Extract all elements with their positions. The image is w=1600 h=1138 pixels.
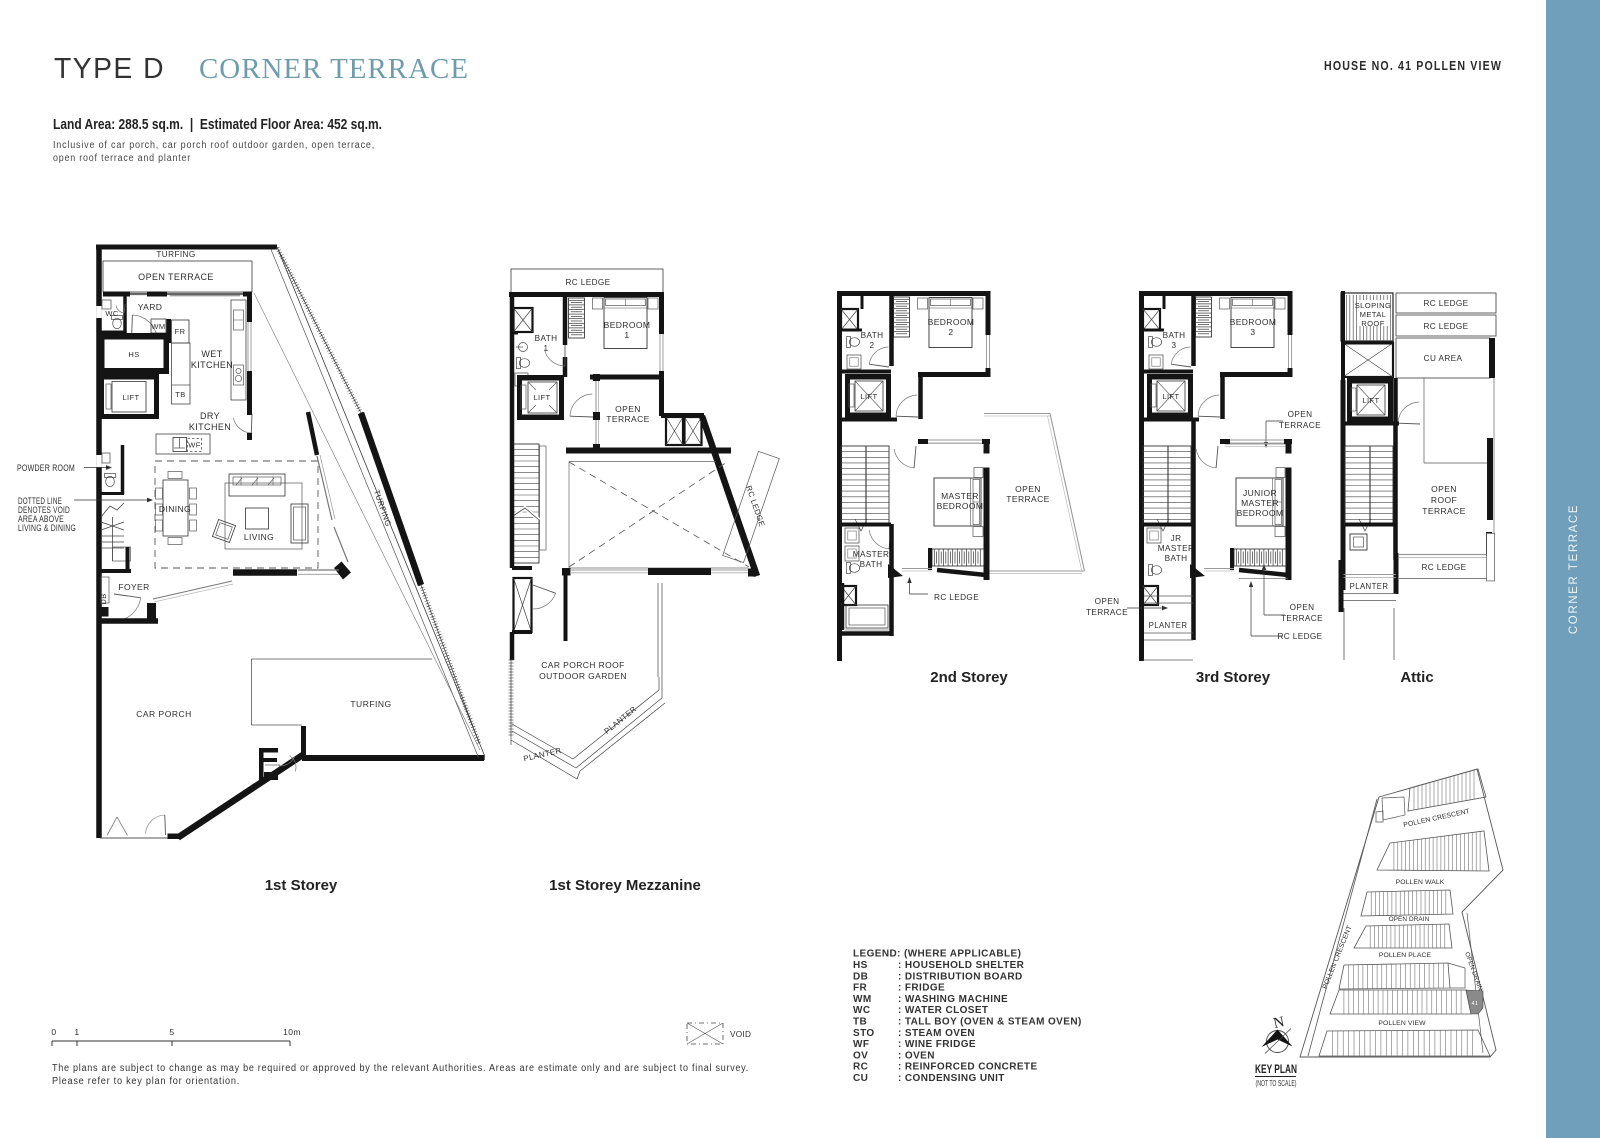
svg-text:RC LEDGE: RC LEDGE (1423, 322, 1468, 331)
svg-text:LIFT: LIFT (1162, 392, 1179, 401)
svg-text:BEDROOM: BEDROOM (937, 501, 984, 511)
svg-text:LIFT: LIFT (860, 392, 877, 401)
svg-text:LIFT: LIFT (533, 393, 550, 402)
svg-text:WF: WF (853, 1039, 869, 1050)
svg-text:ROOF: ROOF (1361, 319, 1385, 328)
svg-text:BATH: BATH (860, 560, 883, 569)
svg-text:OPEN: OPEN (1095, 597, 1120, 606)
svg-text:HOUSE NO. 41 POLLEN VIEW: HOUSE NO. 41 POLLEN VIEW (1324, 58, 1502, 73)
svg-text:BEDROOM: BEDROOM (928, 317, 975, 327)
svg-text:MASTER: MASTER (1241, 498, 1279, 508)
svg-text:3: 3 (1250, 327, 1255, 337)
svg-text:LEGEND: (WHERE APPLICABLE): LEGEND: (WHERE APPLICABLE) (853, 949, 1021, 960)
svg-text:KEY PLAN: KEY PLAN (1255, 1064, 1297, 1076)
svg-text:LIVING: LIVING (244, 532, 274, 542)
svg-text:TURFING: TURFING (156, 250, 195, 259)
svg-text:Attic: Attic (1400, 669, 1433, 686)
svg-text:TURFING: TURFING (350, 699, 391, 709)
svg-text:YARD: YARD (138, 302, 163, 312)
svg-text:BATH: BATH (535, 334, 558, 343)
svg-text:LIVING & DINING: LIVING & DINING (18, 523, 76, 533)
svg-text:: HOUSEHOLD SHELTER: : HOUSEHOLD SHELTER (898, 960, 1025, 971)
svg-text:1: 1 (544, 344, 549, 353)
svg-text:FR: FR (853, 983, 868, 994)
svg-text:VOID: VOID (730, 1030, 751, 1039)
svg-text:OPEN TERRACE: OPEN TERRACE (138, 272, 214, 282)
svg-text:ROOF: ROOF (1431, 495, 1457, 505)
svg-text:PLANTER: PLANTER (1350, 582, 1389, 591)
svg-text:: CONDENSING UNIT: : CONDENSING UNIT (898, 1073, 1005, 1084)
svg-text:BEDROOM: BEDROOM (1230, 317, 1277, 327)
svg-text:WC: WC (853, 1005, 870, 1016)
svg-text:BEDROOM: BEDROOM (1237, 508, 1284, 518)
svg-text:HS: HS (853, 960, 868, 971)
svg-text:JR: JR (1171, 534, 1182, 543)
svg-text:OPEN: OPEN (1431, 484, 1457, 494)
svg-text:: WATER CLOSET: : WATER CLOSET (898, 1005, 988, 1016)
svg-text:STO: STO (853, 1028, 875, 1039)
svg-text:RC LEDGE: RC LEDGE (565, 278, 610, 287)
svg-text:POLLEN WALK: POLLEN WALK (1396, 879, 1445, 886)
svg-text:HS: HS (128, 350, 139, 359)
svg-text:: WASHING MACHINE: : WASHING MACHINE (898, 994, 1008, 1005)
svg-text:MASTER: MASTER (853, 550, 890, 559)
svg-text:DRY: DRY (200, 411, 220, 421)
svg-text:RC LEDGE: RC LEDGE (1277, 632, 1322, 641)
svg-text:1st Storey: 1st Storey (265, 877, 338, 894)
svg-text:LIFT: LIFT (122, 393, 139, 402)
svg-text:FOYER: FOYER (118, 582, 149, 592)
svg-text:1: 1 (74, 1027, 79, 1037)
svg-text:JUNIOR: JUNIOR (1243, 488, 1277, 498)
svg-text:POLLEN VIEW: POLLEN VIEW (1378, 1020, 1426, 1027)
svg-text:BATH: BATH (861, 331, 884, 340)
svg-text:WM: WM (853, 994, 872, 1005)
svg-text:WM: WM (151, 322, 165, 331)
svg-text:1: 1 (624, 330, 629, 340)
svg-text:CORNER TERRACE: CORNER TERRACE (1568, 504, 1580, 634)
svg-text:KITCHEN: KITCHEN (189, 422, 231, 432)
svg-text:: REINFORCED CONCRETE: : REINFORCED CONCRETE (898, 1062, 1038, 1073)
svg-text:KITCHEN: KITCHEN (191, 360, 233, 370)
svg-text:3rd Storey: 3rd Storey (1196, 669, 1271, 686)
svg-text:OPEN: OPEN (615, 404, 641, 414)
svg-text:TB: TB (175, 390, 185, 399)
svg-text:POLLEN PLACE: POLLEN PLACE (1379, 952, 1432, 959)
svg-text:(NOT TO SCALE): (NOT TO SCALE) (1256, 1079, 1297, 1088)
svg-text:CORNER TERRACE: CORNER TERRACE (199, 53, 469, 85)
svg-text:The plans are subject to chang: The plans are subject to change as may b… (52, 1063, 749, 1074)
svg-text:RC: RC (853, 1062, 868, 1073)
svg-text:MASTER: MASTER (1158, 544, 1195, 553)
svg-text:TYPE D: TYPE D (54, 53, 165, 85)
svg-text:open roof terrace and planter: open roof terrace and planter (53, 153, 191, 164)
svg-text:CAR PORCH ROOF: CAR PORCH ROOF (541, 660, 625, 670)
svg-text:BATH: BATH (1163, 331, 1186, 340)
svg-text:: TALL BOY (OVEN & STEAM OVEN): : TALL BOY (OVEN & STEAM OVEN) (898, 1017, 1082, 1028)
svg-text:POWDER ROOM: POWDER ROOM (17, 463, 75, 473)
svg-text:3: 3 (1172, 341, 1177, 350)
svg-text:TERRACE: TERRACE (1086, 608, 1128, 617)
svg-text:WC: WC (105, 309, 118, 318)
svg-text:DB: DB (853, 971, 868, 982)
svg-text:MASTER: MASTER (941, 491, 979, 501)
svg-text:BATH: BATH (1165, 554, 1188, 563)
svg-text:RC LEDGE: RC LEDGE (1423, 299, 1468, 308)
svg-text:TERRACE: TERRACE (1279, 421, 1321, 430)
svg-text:WET: WET (201, 349, 222, 359)
svg-text:TERRACE: TERRACE (1422, 506, 1465, 516)
svg-text:: STEAM OVEN: : STEAM OVEN (898, 1028, 975, 1039)
svg-text:CU AREA: CU AREA (1424, 354, 1463, 363)
svg-text:Please refer to key plan for o: Please refer to key plan for orientation… (52, 1076, 240, 1087)
svg-text:: OVEN: : OVEN (898, 1050, 935, 1061)
svg-text:LIFT: LIFT (1362, 396, 1379, 405)
svg-text:OPEN: OPEN (1015, 484, 1041, 494)
svg-text:RC LEDGE: RC LEDGE (1421, 563, 1466, 572)
svg-text:Land Area: 288.5 sq.m. | Est: Land Area: 288.5 sq.m. | Estimated Floor… (53, 117, 382, 133)
svg-text:2: 2 (870, 341, 875, 350)
svg-text:TERRACE: TERRACE (1006, 494, 1049, 504)
svg-text:OUTDOOR GARDEN: OUTDOOR GARDEN (539, 671, 627, 681)
svg-text:DINING: DINING (159, 504, 191, 514)
svg-text:CAR PORCH: CAR PORCH (136, 709, 192, 719)
svg-text:PLANTER: PLANTER (1149, 621, 1188, 630)
svg-text:10m: 10m (283, 1027, 301, 1037)
svg-text:OPEN DRAIN: OPEN DRAIN (1389, 916, 1430, 923)
svg-text:RC LEDGE: RC LEDGE (934, 593, 979, 602)
svg-text:: DISTRIBUTION BOARD: : DISTRIBUTION BOARD (898, 971, 1023, 982)
svg-text:OPEN: OPEN (1288, 410, 1313, 419)
svg-text:METAL: METAL (1360, 310, 1387, 319)
svg-text:FR: FR (175, 327, 186, 336)
svg-text:5: 5 (169, 1027, 174, 1037)
svg-text:BEDROOM: BEDROOM (604, 320, 651, 330)
svg-text:41: 41 (1472, 1001, 1479, 1007)
svg-text:: WINE FRIDGE: : WINE FRIDGE (898, 1039, 976, 1050)
svg-text:0: 0 (51, 1027, 56, 1037)
svg-text:TERRACE: TERRACE (606, 414, 649, 424)
svg-text:Inclusive of car porch, car po: Inclusive of car porch, car porch roof o… (53, 140, 375, 151)
svg-text:OV: OV (853, 1050, 868, 1061)
svg-text:TB: TB (853, 1017, 867, 1028)
svg-text:2nd Storey: 2nd Storey (930, 669, 1008, 686)
svg-text:OPEN: OPEN (1290, 603, 1315, 612)
svg-text:SLOPING: SLOPING (1355, 301, 1392, 310)
svg-text:2: 2 (948, 327, 953, 337)
svg-text:WF: WF (188, 441, 200, 450)
svg-text:TERRACE: TERRACE (1281, 614, 1323, 623)
svg-text:1st Storey Mezzanine: 1st Storey Mezzanine (549, 877, 701, 894)
svg-text:: FRIDGE: : FRIDGE (898, 983, 945, 994)
svg-text:CU: CU (853, 1073, 868, 1084)
